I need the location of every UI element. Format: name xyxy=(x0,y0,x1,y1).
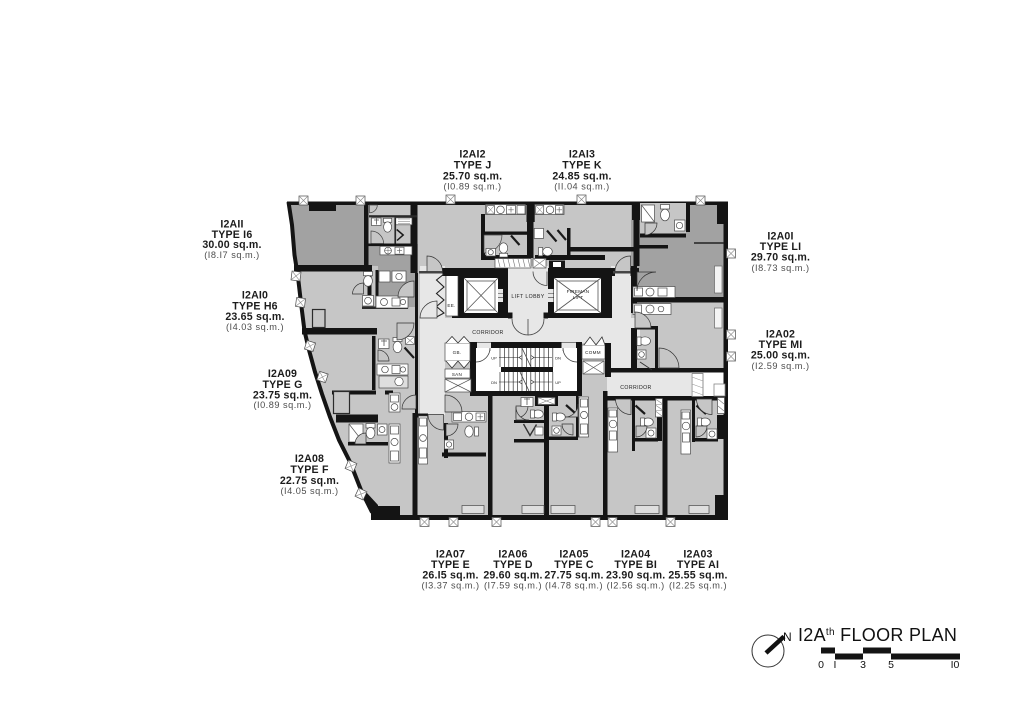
svg-text:(I7.59 sq.m.): (I7.59 sq.m.) xyxy=(484,581,542,591)
svg-text:DN: DN xyxy=(491,380,497,385)
svg-text:(I8.73 sq.m.): (I8.73 sq.m.) xyxy=(751,263,809,273)
svg-text:25.55 sq.m.: 25.55 sq.m. xyxy=(668,569,727,581)
svg-text:(I4.03 sq.m.): (I4.03 sq.m.) xyxy=(226,322,284,332)
svg-text:(I2.25 sq.m.): (I2.25 sq.m.) xyxy=(669,581,727,591)
svg-text:(I4.05 sq.m.): (I4.05 sq.m.) xyxy=(280,486,338,496)
svg-text:LIFT LOBBY: LIFT LOBBY xyxy=(511,294,544,300)
svg-text:I: I xyxy=(834,659,837,671)
svg-text:25.00 sq.m.: 25.00 sq.m. xyxy=(751,350,810,362)
svg-text:GB.: GB. xyxy=(453,350,462,355)
svg-text:5: 5 xyxy=(888,659,894,671)
svg-text:CORRIDOR: CORRIDOR xyxy=(472,330,503,336)
svg-text:(I0.89 sq.m.): (I0.89 sq.m.) xyxy=(444,182,502,192)
svg-text:N: N xyxy=(783,630,792,644)
svg-text:DN: DN xyxy=(555,356,561,361)
svg-text:FIREMAN: FIREMAN xyxy=(567,289,590,294)
svg-text:30.00 sq.m.: 30.00 sq.m. xyxy=(202,239,261,251)
svg-text:3: 3 xyxy=(860,659,866,671)
svg-text:I0: I0 xyxy=(951,659,960,671)
svg-text:(I4.78 sq.m.): (I4.78 sq.m.) xyxy=(545,581,603,591)
svg-text:0: 0 xyxy=(818,659,824,671)
svg-text:(I8.I7 sq.m.): (I8.I7 sq.m.) xyxy=(204,250,260,260)
svg-text:LIFT: LIFT xyxy=(573,295,584,300)
svg-text:23.90 sq.m.: 23.90 sq.m. xyxy=(606,569,665,581)
svg-text:(I2.59 sq.m.): (I2.59 sq.m.) xyxy=(751,361,809,371)
svg-text:EE.: EE. xyxy=(447,303,455,308)
svg-text:(I2.56 sq.m.): (I2.56 sq.m.) xyxy=(607,581,665,591)
svg-text:26.I5 sq.m.: 26.I5 sq.m. xyxy=(422,569,478,581)
svg-text:29.70 sq.m.: 29.70 sq.m. xyxy=(751,252,810,264)
svg-text:27.75 sq.m.: 27.75 sq.m. xyxy=(544,569,603,581)
svg-text:COMM: COMM xyxy=(585,350,601,355)
svg-text:(I0.89 sq.m.): (I0.89 sq.m.) xyxy=(253,400,311,410)
svg-text:29.60 sq.m.: 29.60 sq.m. xyxy=(483,569,542,581)
svg-text:(I3.37 sq.m.): (I3.37 sq.m.) xyxy=(421,581,479,591)
svg-text:SAN: SAN xyxy=(452,372,462,377)
svg-text:CORRIDOR: CORRIDOR xyxy=(620,385,651,391)
svg-text:UP: UP xyxy=(555,380,561,385)
svg-text:I2Ath FLOOR PLAN: I2Ath FLOOR PLAN xyxy=(798,625,957,645)
svg-text:(II.04 sq.m.): (II.04 sq.m.) xyxy=(554,182,610,192)
svg-text:UP: UP xyxy=(491,356,497,361)
